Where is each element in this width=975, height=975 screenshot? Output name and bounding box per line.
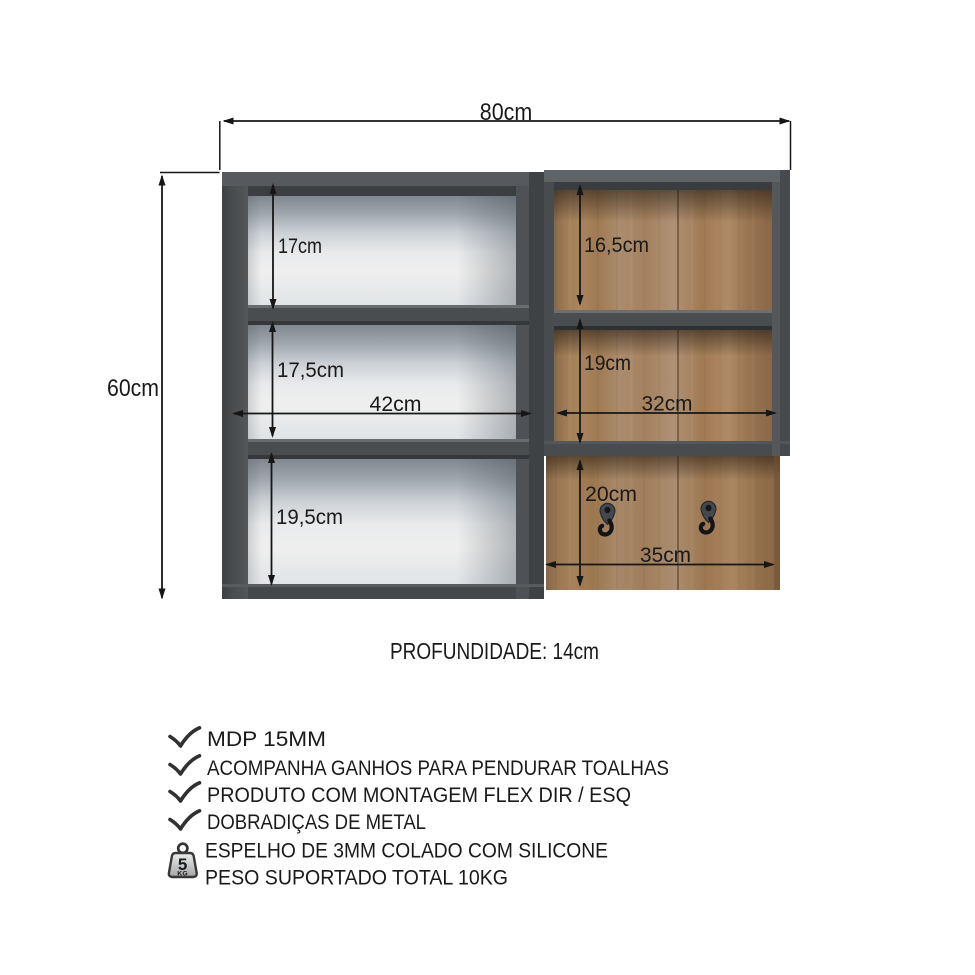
svg-text:32cm: 32cm — [642, 393, 693, 416]
svg-text:80cm: 80cm — [480, 99, 533, 126]
svg-text:ESPELHO DE 3MM COLADO COM SILI: ESPELHO DE 3MM COLADO COM SILICONE — [205, 839, 608, 863]
svg-text:42cm: 42cm — [370, 393, 422, 416]
svg-text:KG: KG — [177, 870, 188, 877]
svg-text:PRODUTO COM MONTAGEM FLEX DIR: PRODUTO COM MONTAGEM FLEX DIR / ESQ — [207, 783, 631, 807]
svg-text:DOBRADIÇAS DE METAL: DOBRADIÇAS DE METAL — [207, 810, 426, 834]
svg-text:MDP 15MM: MDP 15MM — [207, 727, 326, 751]
svg-text:16,5cm: 16,5cm — [584, 234, 649, 257]
svg-text:PROFUNDIDADE: 14cm: PROFUNDIDADE: 14cm — [390, 638, 599, 664]
svg-text:17cm: 17cm — [278, 235, 322, 258]
svg-text:35cm: 35cm — [640, 544, 691, 567]
svg-text:PESO SUPORTADO TOTAL 10KG: PESO SUPORTADO TOTAL 10KG — [205, 866, 508, 890]
svg-text:60cm: 60cm — [107, 375, 159, 402]
svg-text:ACOMPANHA GANHOS PARA PENDURAR: ACOMPANHA GANHOS PARA PENDURAR TOALHAS — [207, 756, 669, 780]
svg-text:20cm: 20cm — [585, 483, 637, 506]
svg-text:17,5cm: 17,5cm — [277, 359, 344, 382]
svg-text:19cm: 19cm — [584, 352, 631, 375]
svg-text:19,5cm: 19,5cm — [276, 506, 343, 529]
